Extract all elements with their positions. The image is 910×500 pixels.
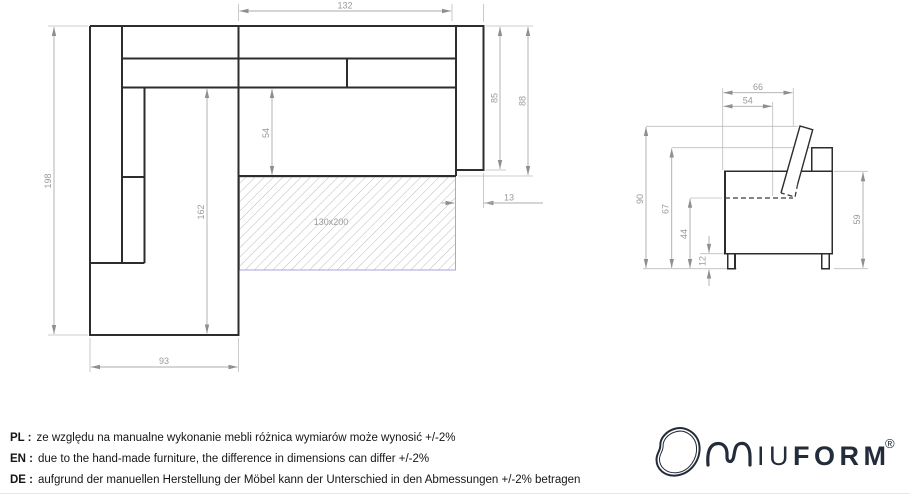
- note-en: EN :due to the hand-made furniture, the …: [10, 449, 580, 470]
- miuform-bean-icon: [657, 428, 700, 476]
- disclaimer-notes: PL :ze względu na manualne wykonanie meb…: [10, 428, 580, 491]
- dim-side-depths: 85 88: [458, 26, 533, 176]
- side-view-drawing: 66 54 90 67 44 12 59: [635, 82, 868, 286]
- side-view-back-frame: [812, 148, 833, 172]
- side-view-back-leg: [822, 254, 830, 269]
- side-view-front-leg: [728, 254, 735, 269]
- logo-registered-mark: ®: [885, 436, 895, 451]
- dim-label-13: 13: [504, 193, 514, 203]
- dim-label-44: 44: [679, 229, 689, 239]
- furniture-dimension-sheet: 132 85 88 13 198: [0, 0, 910, 500]
- note-pl-label: PL :: [10, 432, 32, 444]
- side-view-dim-labels: 66 54 90 67 44 12 59: [635, 82, 862, 266]
- note-en-label: EN :: [10, 453, 33, 465]
- dim-label-162: 162: [196, 204, 206, 219]
- note-de: DE :aufgrund der manuellen Herstellung d…: [10, 470, 580, 491]
- dim-label-54-side: 54: [743, 96, 753, 106]
- dim-label-66: 66: [753, 82, 763, 92]
- dim-label-132: 132: [337, 1, 352, 11]
- dim-label-67: 67: [661, 204, 671, 214]
- logo-form: FORM: [793, 441, 890, 471]
- miuform-logo-svg: IUFORM ®: [640, 424, 902, 482]
- bottom-separator-line: [0, 493, 910, 494]
- note-pl-text: ze względu na manualne wykonanie mebli r…: [37, 432, 456, 444]
- side-view-dim-lines: [643, 88, 868, 286]
- dim-label-198: 198: [43, 173, 53, 188]
- note-de-text: aufgrund der manuellen Herstellung der M…: [38, 474, 580, 486]
- logo-iu: IU: [757, 441, 793, 471]
- dim-armrest-width: 13: [441, 173, 543, 208]
- dim-label-54-plan: 54: [261, 128, 271, 138]
- side-view-body: [725, 171, 832, 253]
- miuform-logo: IUFORM ®: [640, 424, 902, 482]
- note-pl: PL :ze względu na manualne wykonanie meb…: [10, 428, 580, 449]
- dim-label-93: 93: [159, 356, 169, 366]
- note-en-text: due to the hand-made furniture, the diff…: [38, 453, 429, 465]
- dim-length-inner: 162: [196, 89, 207, 334]
- dim-seat-depth-plan: 54: [261, 89, 272, 175]
- dim-chaise-width: 93: [90, 338, 239, 372]
- dim-label-88: 88: [518, 96, 528, 106]
- sleeping-area-label: 130x200: [314, 217, 349, 227]
- top-view-drawing: 132 85 88 13 198: [43, 1, 543, 373]
- dim-label-59: 59: [852, 214, 862, 224]
- dim-length-total: 198: [43, 26, 88, 335]
- logo-m-wave-glyph: [708, 443, 750, 465]
- dim-label-90: 90: [635, 194, 645, 204]
- dim-label-85: 85: [490, 93, 500, 103]
- dim-label-12: 12: [698, 256, 708, 266]
- logo-wordmark: IUFORM: [757, 441, 890, 471]
- note-de-label: DE :: [10, 474, 33, 486]
- dim-seat-width: 132: [239, 1, 484, 23]
